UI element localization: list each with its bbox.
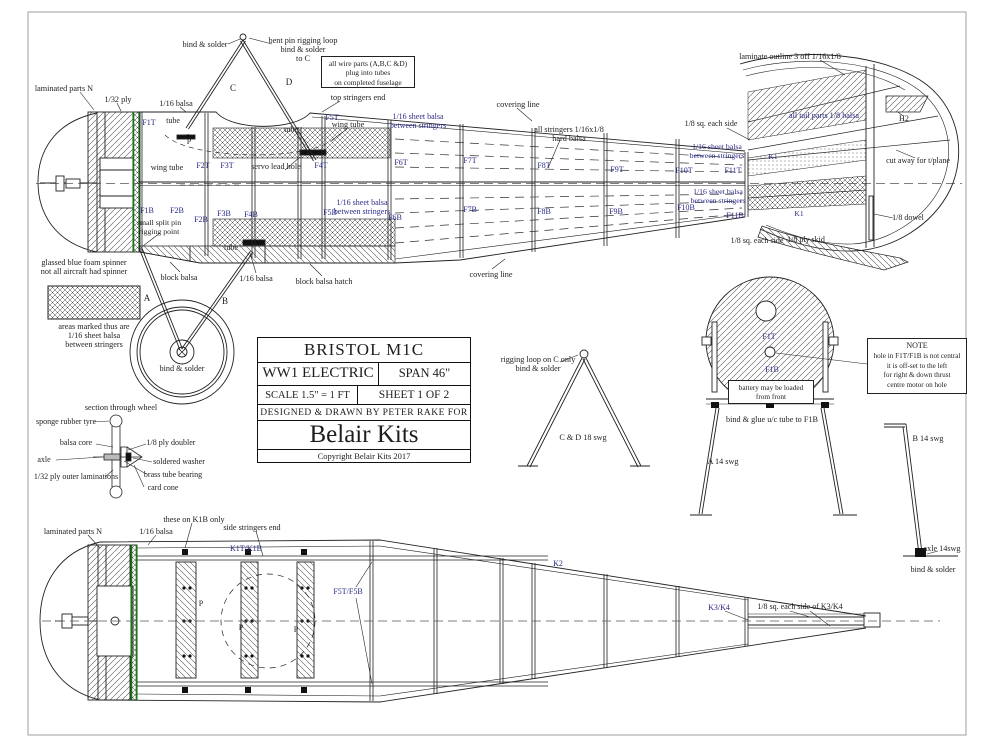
annotation-label: F8B (537, 208, 551, 217)
annotation-label: P (239, 624, 243, 633)
annotation-label: block balsa hatch (296, 277, 353, 286)
annotation-label: 1/8 sq. each side (731, 237, 784, 246)
battery-note-box: battery may be loaded from front (728, 380, 814, 404)
brand-name: Belair Kits (309, 421, 418, 449)
annotation-label: 1/16 sheet balsa between stringers (691, 188, 746, 205)
annotation-label: 1/16 balsa (159, 99, 192, 108)
annotation-label: soldered washer (153, 458, 205, 467)
copyright: Copyright Belair Kits 2017 (318, 451, 411, 461)
annotation-label: 1/8 sq. each side of K3/K4 (757, 603, 842, 612)
annotation-label: these on K1B only (163, 515, 224, 524)
annotation-label: F4T (314, 162, 327, 171)
annotation-label: side stringers end (223, 523, 280, 532)
annotation-label: F1B (765, 366, 779, 375)
annotation-label: B 14 swg (913, 434, 944, 443)
blueprint-sheet: laminated parts N1/32 ply1/16 balsabind … (0, 0, 998, 747)
plan-designer: DESIGNED & DRAWN BY PETER RAKE FOR (260, 408, 467, 418)
annotation-label: F3T (220, 162, 233, 171)
annotation-label: H2 (899, 114, 909, 123)
annotation-label: tube (284, 126, 298, 135)
annotation-label: A 14 swg (708, 457, 739, 466)
annotation-label: laminate outline 3 off 1/16x1/8 (739, 52, 841, 61)
annotation-label: glassed blue foam spinner not all aircra… (41, 258, 127, 276)
plan-type: WW1 ELECTRIC (258, 363, 379, 385)
annotation-label: P (187, 138, 191, 147)
annotation-label: 1/8 ply skid (787, 236, 825, 245)
annotation-label: C (230, 83, 236, 93)
annotation-label: F5B (323, 209, 337, 218)
annotation-label: K1 (794, 210, 803, 218)
annotation-label: F9B (609, 208, 623, 217)
wire-parts-note-box: all wire parts (A,B,C &D) plug into tube… (321, 56, 415, 88)
plan-scale: SCALE 1.5" = 1 FT (258, 386, 358, 404)
annotation-label: K2 (553, 560, 563, 569)
annotation-label: B (222, 296, 228, 306)
title-block: BRISTOL M1C WW1 ELECTRIC SPAN 46" SCALE … (257, 337, 471, 463)
plan-sheet: SHEET 1 OF 2 (358, 386, 470, 404)
note-line: battery may be loaded (732, 383, 810, 392)
annotation-label: F8T (537, 162, 550, 171)
annotation-label: bind & solder (159, 364, 204, 373)
annotation-label: A (144, 293, 151, 303)
annotation-label: F4B (244, 211, 258, 220)
annotation-label: K1 (768, 153, 777, 161)
annotation-label: tube (166, 117, 180, 126)
note-line: all wire parts (A,B,C &D) (325, 59, 411, 68)
annotation-label: F1B (140, 207, 154, 216)
annotation-label: F1T (142, 119, 155, 128)
annotation-label: 1/8 sq. each side (685, 120, 738, 129)
annotation-label: F11B (726, 212, 744, 221)
plan-title: BRISTOL M1C (304, 340, 424, 360)
note-line: plug into tubes (325, 68, 411, 77)
annotation-label: card cone (148, 484, 179, 493)
annotation-label: F2T (196, 162, 209, 171)
annotation-label: 1/16 balsa (239, 274, 272, 283)
annotation-layer: laminated parts N1/32 ply1/16 balsabind … (0, 0, 998, 747)
annotation-label: C & D 18 swg (559, 433, 606, 442)
annotation-label: F2B (170, 207, 184, 216)
annotation-label: F7T (463, 157, 476, 166)
annotation-label: cut away for t/plane (886, 157, 950, 166)
annotation-label: servo lead hole (251, 162, 301, 171)
annotation-label: bind & glue u/c tube to F1B (726, 415, 818, 424)
annotation-label: sponge rubber tyre (36, 418, 96, 427)
note-line: it is off-set to the left (871, 362, 963, 372)
annotation-label: F1T (762, 333, 775, 342)
note-line: from front (732, 392, 810, 401)
annotation-label: 1/8 ply doubler (147, 439, 196, 448)
annotation-label: P (294, 626, 298, 635)
annotation-label: F10T (675, 167, 692, 176)
annotation-label: 1/32 ply (104, 95, 131, 104)
note-line: on completed fuselage (325, 78, 411, 87)
annotation-label: 1/16 balsa (139, 527, 172, 536)
annotation-label: axle (37, 456, 50, 465)
annotation-label: F5T (325, 114, 338, 123)
annotation-label: F11T (724, 167, 741, 176)
annotation-label: block balsa (160, 273, 197, 282)
annotation-label: 1/16 sheet balsa between stringers (690, 143, 745, 160)
annotation-label: F6B (388, 214, 402, 223)
annotation-label: wing tube (151, 163, 184, 172)
annotation-label: all stringers 1/16x1/8 hard balsa (534, 125, 604, 143)
annotation-label: bind & solder (910, 565, 955, 574)
note-line: centre motor on hole (871, 381, 963, 391)
thrust-note-box: NOTE hole in F1T/F1B is not central it i… (867, 338, 967, 394)
annotation-label: F9T (610, 166, 623, 175)
annotation-label: all tail parts 1/8 balsa (789, 111, 859, 120)
annotation-label: F5T/F5B (333, 588, 362, 597)
annotation-label: bind & solder (182, 40, 227, 49)
annotation-label: axle 14swg (923, 544, 960, 553)
annotation-label: balsa core (60, 439, 92, 448)
annotation-label: top stringers end (331, 93, 386, 102)
annotation-label: F2B (194, 216, 208, 225)
annotation-label: areas marked thus are 1/16 sheet balsa b… (58, 322, 129, 350)
annotation-label: 1/8 dowel (892, 214, 924, 223)
plan-span: SPAN 46" (379, 363, 470, 385)
annotation-label: brass tube bearing (144, 471, 202, 480)
annotation-label: rigging loop on C only bind & solder (501, 355, 576, 373)
annotation-label: covering line (497, 100, 540, 109)
annotation-label: covering line (470, 270, 513, 279)
annotation-label: F6T (394, 159, 407, 168)
annotation-label: K3/K4 (708, 604, 730, 613)
annotation-label: D (286, 77, 293, 87)
note-line: hole in F1T/F1B is not central (871, 352, 963, 362)
annotation-label: laminated parts N (44, 527, 102, 536)
annotation-label: K1T/K1B (230, 545, 262, 554)
annotation-label: F10B (677, 204, 695, 213)
annotation-label: F7B (463, 206, 477, 215)
annotation-label: wing tube (332, 120, 365, 129)
annotation-label: 1/32 ply outer laminations (34, 473, 118, 482)
note-title: NOTE (871, 341, 963, 352)
annotation-label: laminated parts N (35, 84, 93, 93)
annotation-label: 1/16 sheet balsa between stringers (334, 199, 390, 217)
annotation-label: small split pin rigging point (137, 219, 181, 236)
annotation-label: 1/16 sheet balsa between stringers (390, 113, 446, 131)
annotation-label: section through wheel (85, 403, 157, 412)
annotation-label: tube (224, 244, 238, 253)
annotation-label: P (199, 600, 203, 609)
note-line: for right & down thrust (871, 371, 963, 381)
annotation-label: F3B (217, 210, 231, 219)
